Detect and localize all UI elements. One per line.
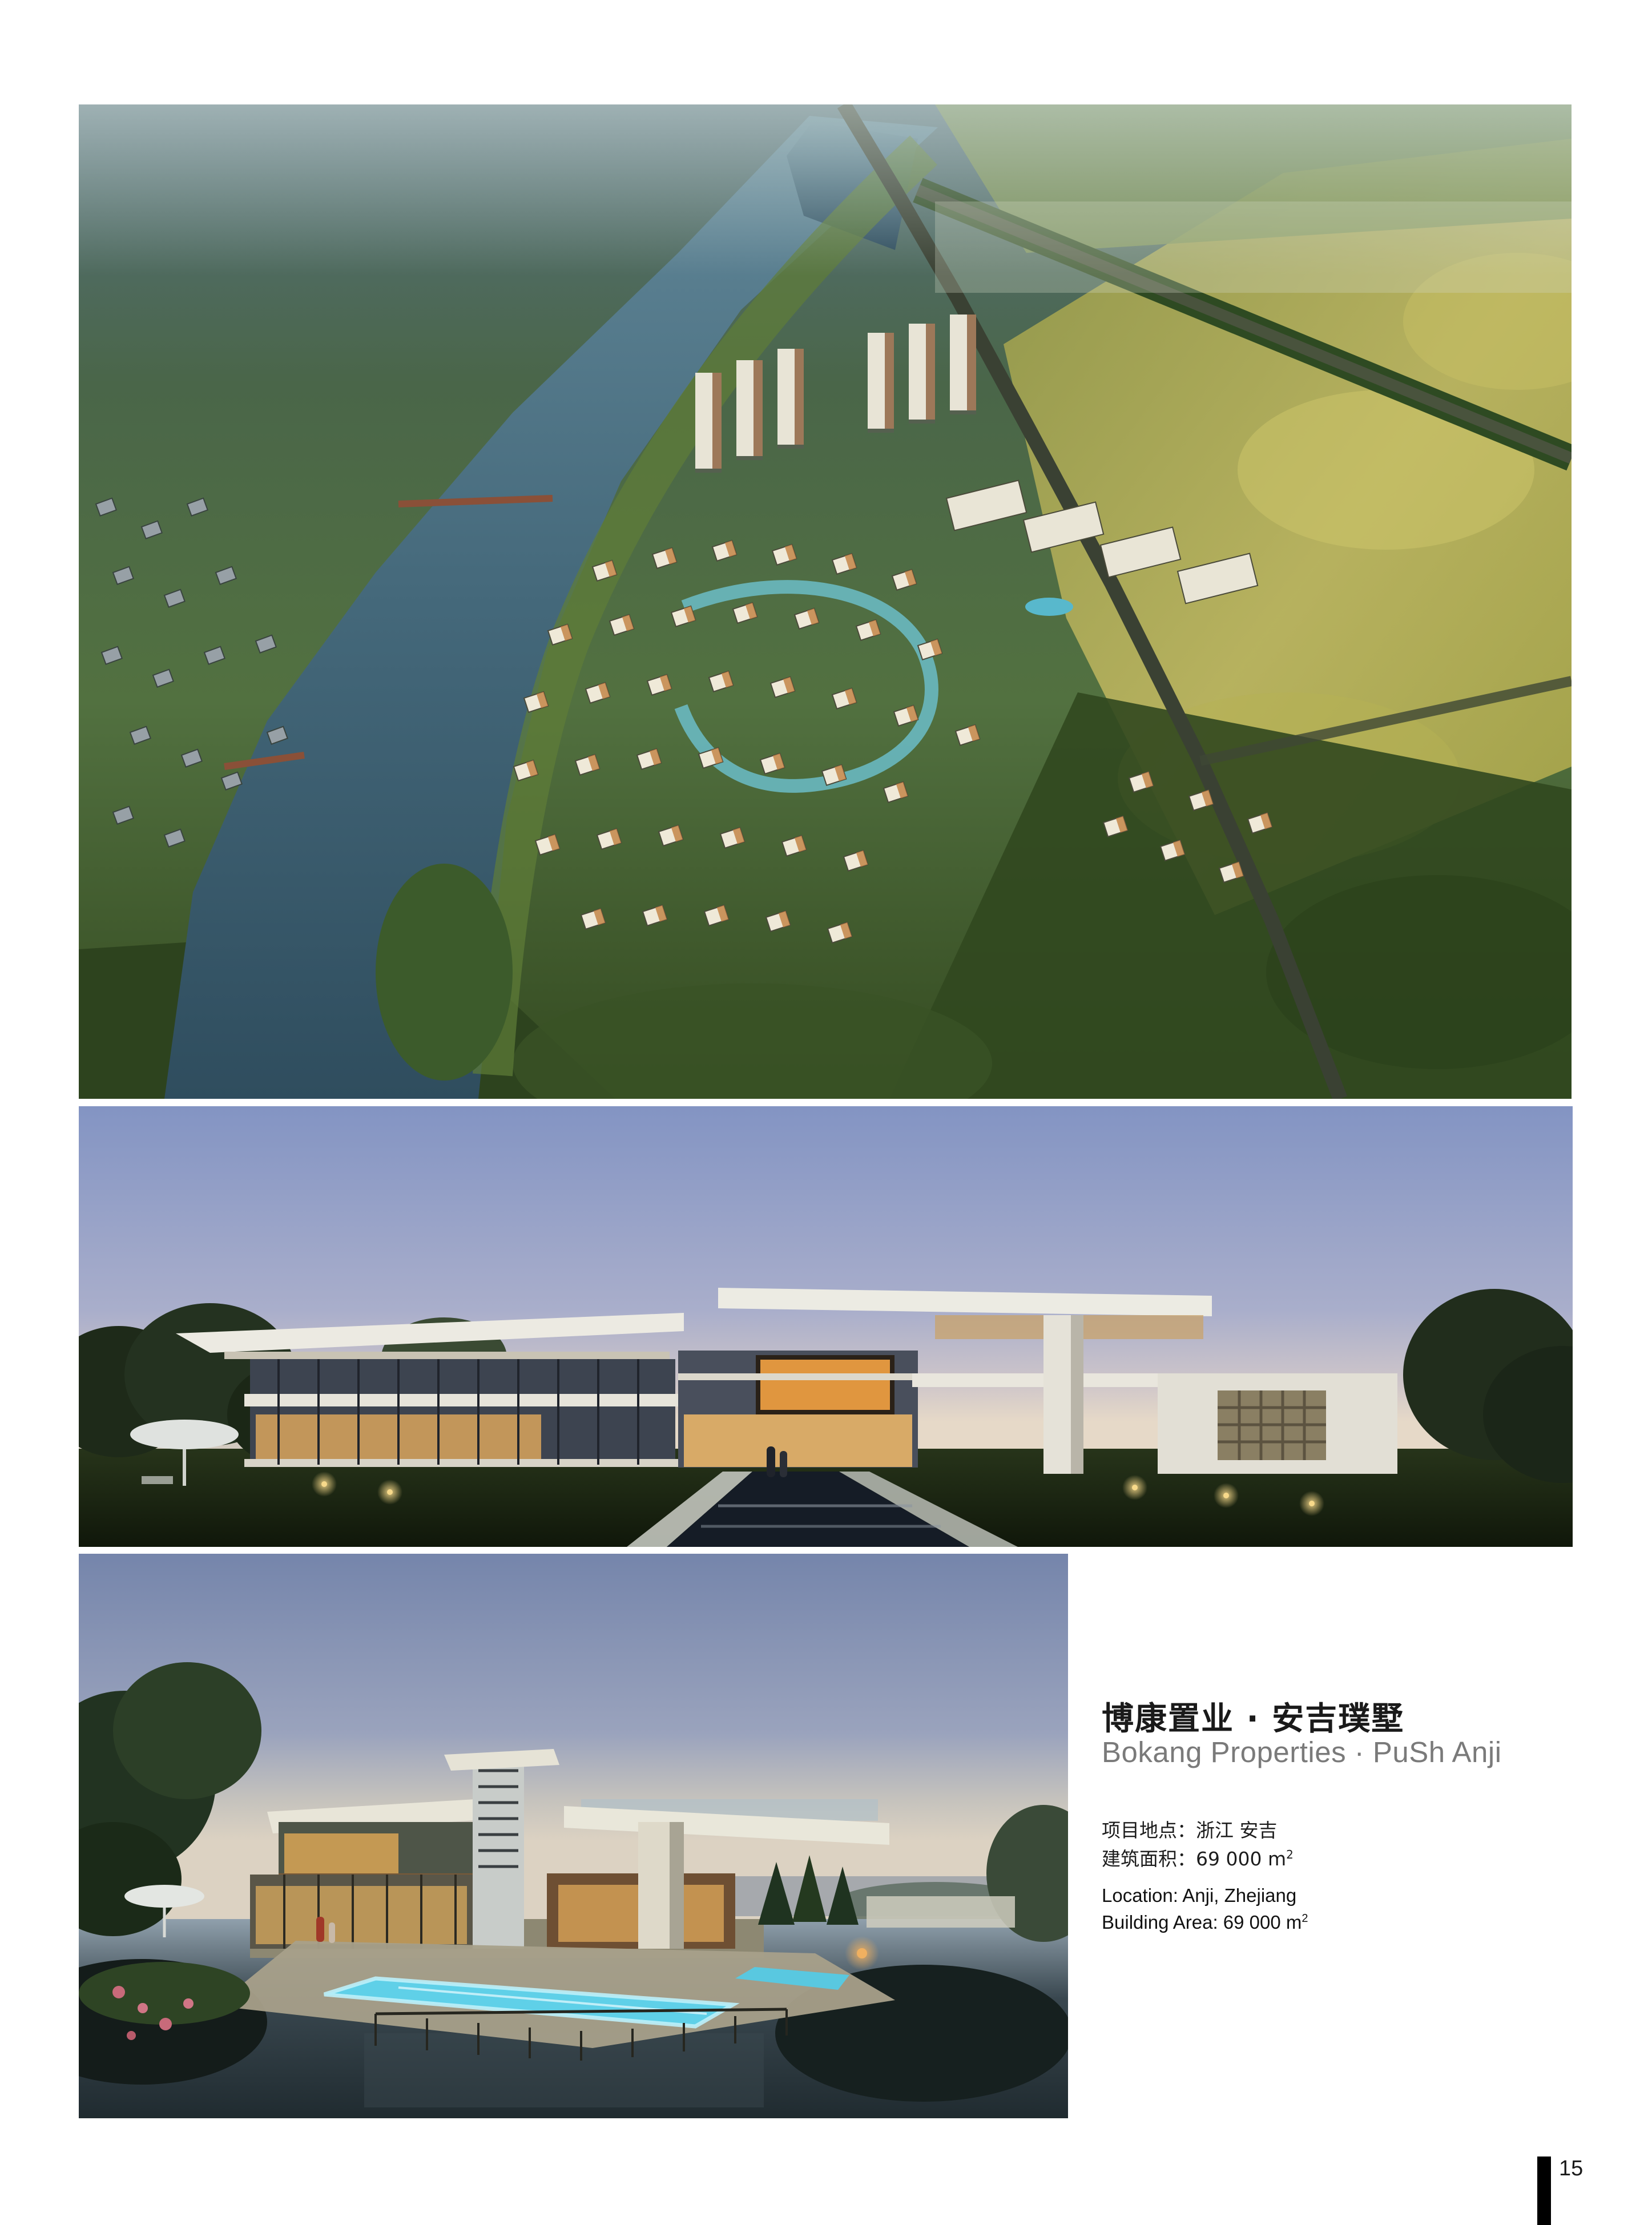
area-label-zh: 建筑面积：	[1102, 1848, 1196, 1870]
villa-pool-image	[79, 1554, 1068, 2118]
area-line-zh: 建筑面积：69 000 m2	[1102, 1843, 1294, 1871]
villa-pool-art	[79, 1554, 1068, 2118]
book-page: 博康置业 · 安吉璞墅 Bokang Properties · PuSh Anj…	[0, 0, 1652, 2225]
location-label-zh: 项目地点：	[1102, 1819, 1196, 1841]
page-number: 15	[1559, 2157, 1583, 2181]
area-superscript-zh: 2	[1286, 1848, 1294, 1861]
project-details-zh: 项目地点：浙江 安吉 建筑面积：69 000 m2	[1102, 1819, 1294, 1871]
page-number-bar	[1537, 2157, 1551, 2225]
villa-dusk-art	[79, 1106, 1573, 1547]
project-details-en: Location: Anji, Zhejiang Building Area: …	[1102, 1884, 1308, 1934]
location-value-zh: 浙江 安吉	[1196, 1819, 1278, 1841]
area-superscript-en: 2	[1302, 1912, 1308, 1925]
project-title-zh: 博康置业 · 安吉璞墅	[1102, 1693, 1404, 1739]
location-line-en: Location: Anji, Zhejiang	[1102, 1884, 1308, 1907]
area-value-en: Building Area: 69 000 m	[1102, 1912, 1302, 1933]
aerial-masterplan-art	[79, 104, 1572, 1099]
pool-lantern	[845, 1936, 879, 1970]
project-title-en: Bokang Properties · PuSh Anji	[1102, 1735, 1502, 1769]
location-line-zh: 项目地点：浙江 安吉	[1102, 1819, 1294, 1843]
area-line-en: Building Area: 69 000 m2	[1102, 1907, 1308, 1934]
aerial-masterplan-image	[79, 104, 1572, 1099]
villa-dusk-image	[79, 1106, 1573, 1547]
area-value-zh: 69 000 m	[1196, 1848, 1286, 1870]
